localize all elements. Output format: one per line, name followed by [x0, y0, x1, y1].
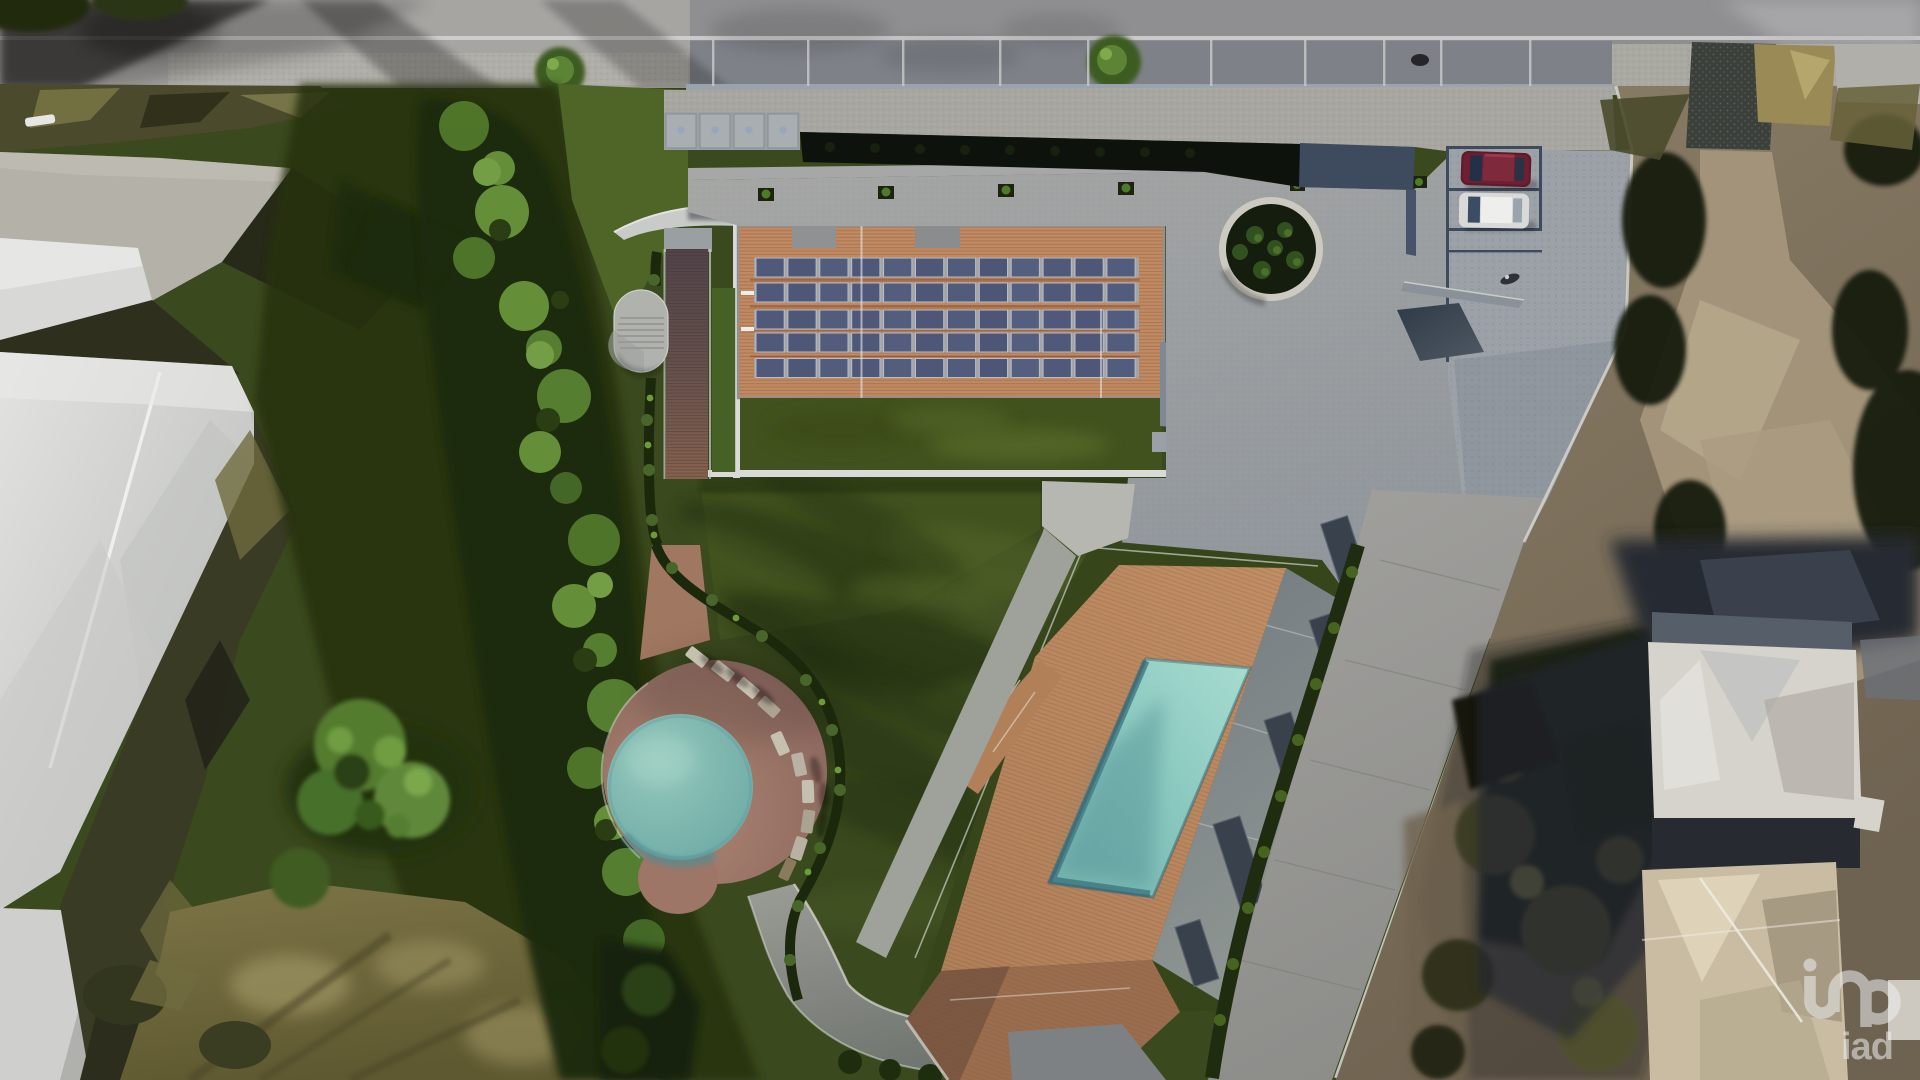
svg-text:iad: iad — [1841, 1026, 1893, 1068]
